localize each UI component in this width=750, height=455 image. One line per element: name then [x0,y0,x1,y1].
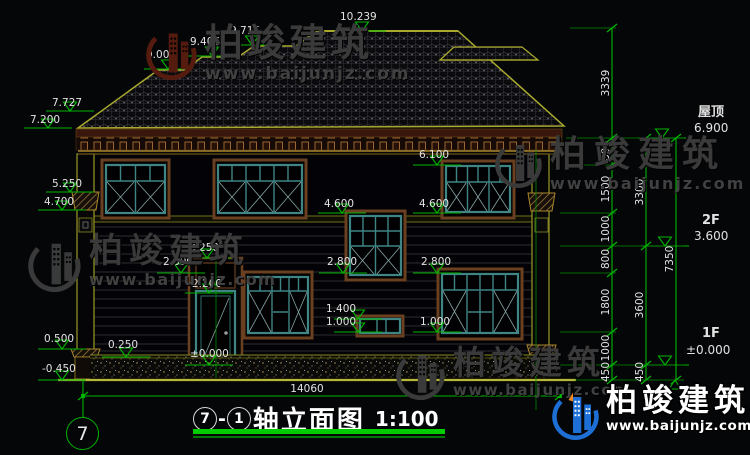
window-stair [346,211,405,280]
level-label: 3.250 [189,242,219,254]
chain-dim: 450 [634,362,646,382]
level-label: 4.600 [419,198,449,210]
floor-name: 1F [702,326,720,341]
chain-dim: 1800 [600,289,612,316]
window-1f-left [244,272,312,338]
title-underline [193,429,445,434]
brand-url: www.baijunjz.com [606,418,750,434]
level-label: 1.000 [326,316,356,328]
floor-name: 屋顶 [698,105,724,120]
title-scale: 1:100 [375,407,439,431]
floor-name: 2F [702,213,720,228]
title-axis-to-bubble: 1 [227,407,251,431]
level-label: 9.715 [230,25,260,37]
chain-dim: 800 [600,141,612,161]
axis-grid-bubble: 7 [66,417,99,450]
level-label: 5.250 [52,178,82,190]
level-label: 1.000 [420,316,450,328]
level-label: 10.239 [340,11,377,23]
level-label: 4.600 [324,198,354,210]
level-label: 4.700 [44,196,74,208]
window-2f-mid [214,160,306,218]
eave-fascia [76,129,562,154]
floor-level: ±0.000 [686,343,730,357]
floor-labels: 屋顶 6.900 2F 3.600 1F ±0.000 [686,105,730,357]
title-underline-2 [193,436,445,438]
chain-dim: 450 [600,362,612,382]
level-label: 7.727 [52,97,82,109]
cad-canvas: 9.001 9.406 9.715 10.239 7.727 7.200 5.2… [0,0,750,455]
chain-dim: 1000 [600,216,612,243]
level-label: 1.400 [326,303,356,315]
roof-main [78,31,564,128]
level-label: 7.200 [30,114,60,126]
chain-dim: 800 [600,249,612,269]
chain-values: 3339 800 1500 1000 800 1800 1000 450 330… [600,70,676,382]
level-label: 6.100 [419,149,449,161]
total-width-label: 14060 [290,383,323,395]
chain-dim: 7350 [664,246,676,273]
floor-level: 3.600 [694,229,728,243]
level-label: -0.450 [42,363,76,375]
ground [58,355,576,380]
level-label: 0.250 [108,339,138,351]
window-2f-left [102,160,169,218]
level-label: 2.800 [163,256,193,268]
axis-grid-number: 7 [76,423,88,445]
title-axis-from-bubble: 7 [193,407,217,431]
level-label: ±0.000 [190,348,229,360]
title-axis-to: 1 [234,411,244,427]
chain-dim: 1000 [600,335,612,362]
chain-dim: 3600 [634,292,646,319]
level-label: 0.500 [44,333,74,345]
window-1f-right [438,269,522,339]
brand-building-icon [552,384,600,446]
door-knob [224,331,228,335]
level-label: 2.800 [327,256,357,268]
level-label: 9.406 [190,36,220,48]
roof-rear-wing [440,47,538,60]
level-label: 9.001 [146,49,176,61]
level-label: 2.200 [192,278,222,290]
brand-logo: 柏竣建筑 www.baijunjz.com [552,384,750,446]
chain-dim: 3339 [600,70,612,97]
title-separator: - [218,408,226,430]
chain-dim: 3300 [634,179,646,206]
floor-level: 6.900 [694,121,728,135]
building [58,31,576,380]
title-axis-from: 7 [200,411,210,427]
level-label: 2.800 [421,256,451,268]
window-2f-right [442,161,514,218]
chain-dim: 1500 [600,176,612,203]
brand-name: 柏竣建筑 [606,384,750,418]
